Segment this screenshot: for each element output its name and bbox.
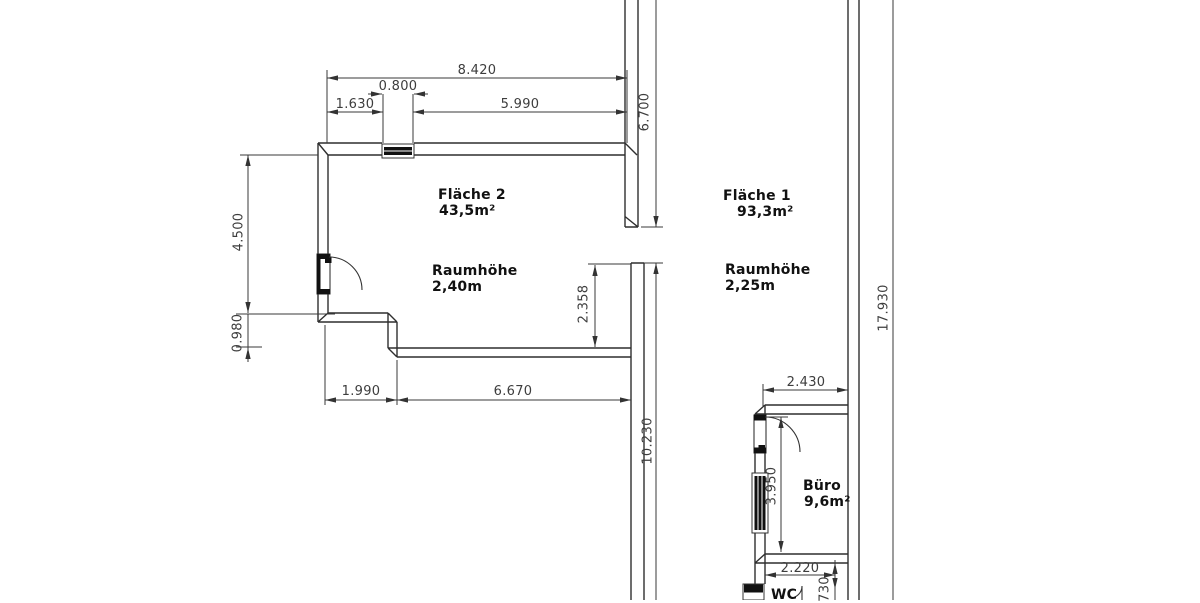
room-flaeche1-height-label: Raumhöhe <box>725 262 810 278</box>
wall-buero-top <box>755 405 848 414</box>
room-flaeche1-height-value: 2,25m <box>725 278 775 294</box>
wall-f2-left <box>318 143 328 322</box>
room-flaeche1-area: 93,3m² <box>737 204 793 220</box>
dim-lower-mid-height-label: 10.230 <box>641 417 656 464</box>
dim-upper-mid-height-label: 6.700 <box>638 93 653 132</box>
dimension-lines <box>248 0 893 600</box>
dim-left-of-window-label: 1.630 <box>336 97 375 112</box>
room-flaeche2-height-label: Raumhöhe <box>432 263 517 279</box>
dim-wc-height-label: 730 <box>818 576 833 602</box>
window-icon-f2-top <box>382 144 414 158</box>
door-icon-f2-left <box>317 254 362 294</box>
dim-bottom-left-width-label: 1.990 <box>342 384 381 399</box>
room-flaeche2-name: Fläche 2 <box>438 187 506 203</box>
dim-buero-height-label: 3.950 <box>765 467 780 506</box>
dim-right-of-window-label: 5.990 <box>501 97 540 112</box>
room-buero-name: Büro <box>803 478 841 494</box>
floorplan-drawing <box>0 0 1200 600</box>
dim-left-step-height-label: 0.980 <box>231 314 246 353</box>
door-swing-arc <box>765 417 800 452</box>
floorplan-canvas: Fläche 2 43,5m² Raumhöhe 2,40m Fläche 1 … <box>0 0 1200 600</box>
wall-outer-right <box>848 0 859 600</box>
dimension-extension-lines <box>236 70 835 600</box>
dim-total-top-width-label: 8.420 <box>458 63 497 78</box>
room-wc-name: WC <box>771 587 797 603</box>
dim-wc-width-label: 2.220 <box>781 561 820 576</box>
dim-bottom-right-width-label: 6.670 <box>494 384 533 399</box>
dim-left-room-height-label: 4.500 <box>232 213 247 252</box>
door-swing-arc <box>329 257 362 290</box>
room-flaeche2-height-value: 2,40m <box>432 279 482 295</box>
dim-total-right-height-label: 17.930 <box>877 284 892 331</box>
room-buero-area: 9,6m² <box>804 494 851 510</box>
doors <box>317 254 802 600</box>
dim-window-width-label: 0.800 <box>379 79 418 94</box>
wall-f2-top <box>318 143 637 155</box>
window-icon-wc-left <box>743 584 764 600</box>
door-icon-buero-left <box>754 415 800 453</box>
dim-mid-passage-height-label: 2.358 <box>577 285 592 324</box>
room-flaeche1-name: Fläche 1 <box>723 188 791 204</box>
room-flaeche2-area: 43,5m² <box>439 203 495 219</box>
door-hinge-dot <box>759 445 766 452</box>
dim-buero-width-label: 2.430 <box>787 375 826 390</box>
